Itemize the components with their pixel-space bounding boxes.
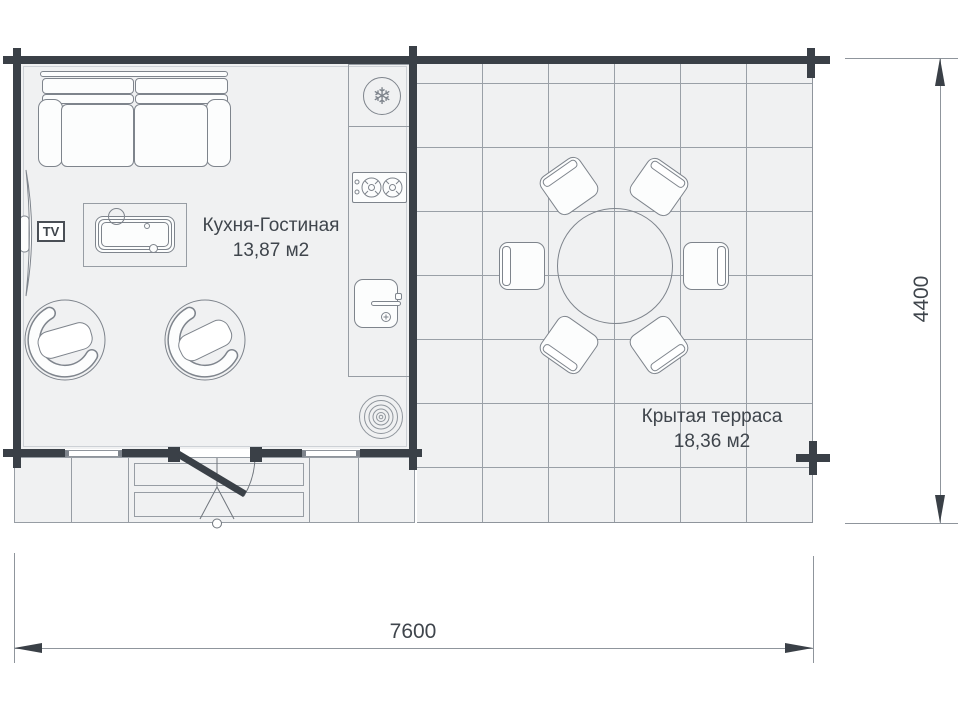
chair-back — [717, 246, 726, 286]
room-label-terrace: Крытая терраса 18,36 м2 — [612, 404, 812, 454]
wall-left — [13, 48, 21, 468]
chair-back — [502, 246, 511, 286]
dimension-arrow-left — [14, 643, 42, 653]
extension-line — [813, 556, 814, 663]
floor-plan: ❄ — [0, 0, 960, 720]
room-name: Кухня-Гостиная — [171, 213, 371, 238]
wall-corner-post — [807, 48, 815, 78]
armchair — [165, 300, 245, 380]
extension-line — [845, 523, 958, 524]
armchair — [25, 300, 105, 380]
room-label-kitchen-living: Кухня-Гостиная 13,87 м2 — [171, 213, 371, 263]
dining-chair — [683, 242, 729, 290]
dimension-arrow-right — [785, 643, 813, 653]
door-jamb — [250, 447, 262, 462]
window — [302, 450, 360, 457]
dimension-arrow-up — [935, 58, 945, 86]
wall-bottom-segment — [3, 449, 65, 457]
burner-icon — [355, 178, 402, 197]
dimension-line-width — [14, 648, 813, 649]
dimension-line-height — [940, 58, 941, 523]
room-name: Крытая терраса — [612, 404, 812, 429]
window — [65, 450, 122, 457]
wall-bottom-segment — [360, 449, 422, 457]
dimension-width-label: 7600 — [353, 620, 473, 644]
room-area: 13,87 м2 — [171, 238, 371, 263]
tv-mount — [20, 216, 29, 252]
wall-divider — [409, 46, 417, 470]
dining-table — [558, 209, 673, 324]
room-area: 18,36 м2 — [612, 429, 812, 454]
plan-vector-layer — [0, 0, 960, 720]
round-rug — [360, 396, 403, 439]
tv-label: TV — [43, 224, 60, 239]
dimension-arrow-down — [935, 495, 945, 523]
dining-chair — [499, 242, 545, 290]
tv-label-box: TV — [37, 221, 65, 242]
dimension-height-label: 4400 — [910, 239, 934, 359]
drain-icon — [382, 313, 391, 322]
